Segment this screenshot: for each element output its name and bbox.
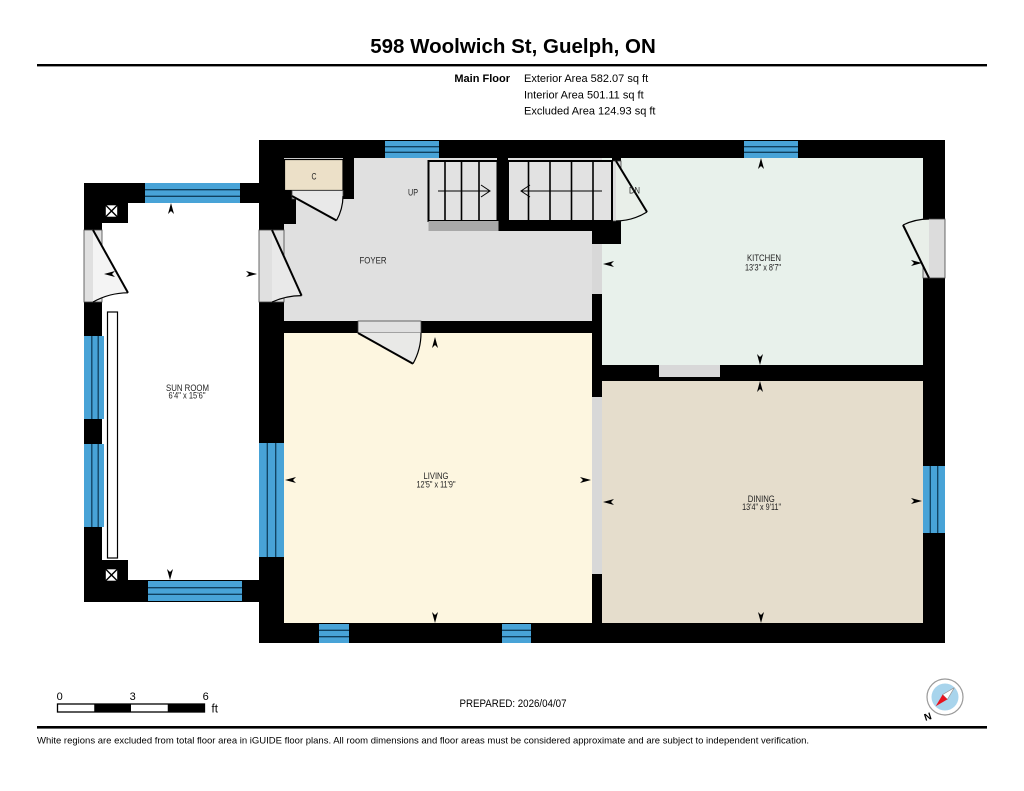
- svg-text:UP: UP: [408, 188, 418, 199]
- svg-text:White regions are excluded fro: White regions are excluded from total fl…: [37, 736, 809, 747]
- svg-text:6: 6: [203, 691, 209, 703]
- svg-text:C: C: [312, 172, 317, 183]
- svg-text:6'4" x 15'6": 6'4" x 15'6": [169, 391, 206, 401]
- svg-text:Interior Area 501.11 sq ft: Interior Area 501.11 sq ft: [524, 90, 644, 102]
- svg-text:Main Floor: Main Floor: [454, 73, 510, 85]
- svg-text:FOYER: FOYER: [360, 256, 387, 267]
- svg-text:0: 0: [57, 691, 63, 703]
- svg-text:PREPARED: 2026/04/07: PREPARED: 2026/04/07: [460, 698, 567, 710]
- svg-text:Exterior Area 582.07 sq ft: Exterior Area 582.07 sq ft: [524, 73, 648, 85]
- svg-text:598 Woolwich St, Guelph, ON: 598 Woolwich St, Guelph, ON: [370, 35, 656, 58]
- svg-text:ft: ft: [212, 704, 219, 716]
- svg-text:DN: DN: [629, 186, 640, 197]
- svg-text:13'4" x 9'11": 13'4" x 9'11": [742, 502, 781, 512]
- svg-text:Excluded Area 124.93 sq ft: Excluded Area 124.93 sq ft: [524, 106, 655, 118]
- svg-text:13'3" x 8'7": 13'3" x 8'7": [745, 263, 781, 273]
- svg-text:12'5" x 11'9": 12'5" x 11'9": [417, 480, 456, 490]
- svg-text:3: 3: [130, 691, 136, 703]
